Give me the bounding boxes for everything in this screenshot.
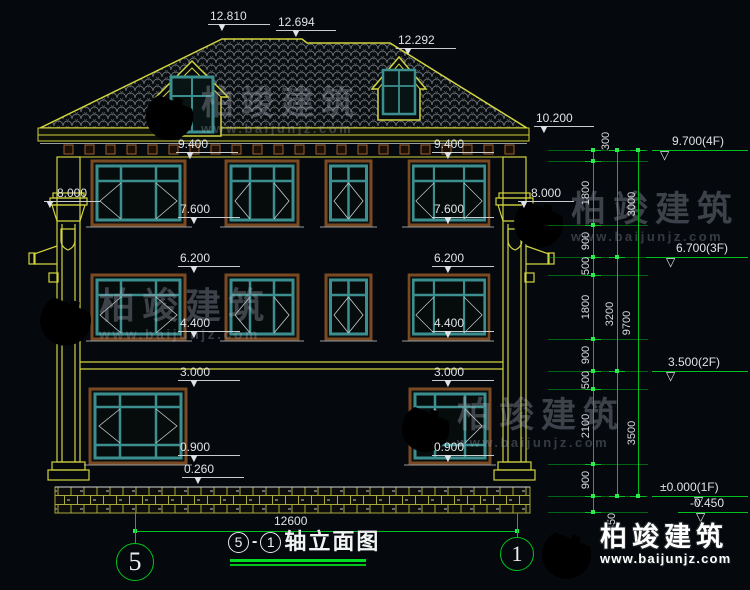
axis-extension-line: [517, 513, 518, 537]
level-label: 3.500(2F): [668, 355, 720, 369]
axis-bubble-1: 1: [500, 537, 534, 571]
title-axis-ref-from: 5: [228, 532, 249, 553]
chain-dot: [591, 159, 595, 163]
down-triangle-icon: ▼: [442, 215, 454, 226]
chain-dim-label: 1800: [580, 181, 592, 205]
chain-dot: [591, 337, 595, 341]
baijun-logo-icon: [536, 523, 596, 587]
elevation-label: 0.900▼: [178, 440, 240, 456]
elevation-label: 0.900▼: [432, 440, 494, 456]
elevation-label: 8.000▼: [44, 186, 100, 202]
down-triangle-icon: ▼: [290, 28, 302, 39]
level-label: 9.700(4F): [672, 134, 724, 148]
down-triangle-icon: ▼: [538, 124, 550, 135]
chain-dot: [636, 148, 640, 152]
elevation-label: 12.292▼: [396, 33, 456, 49]
dimension-layer: 12.810▼12.694▼12.292▼10.200▼9.400▼9.400▼…: [0, 0, 750, 590]
elevation-label: 3.000▼: [178, 365, 240, 381]
down-triangle-icon: ▼: [44, 199, 56, 210]
down-triangle-icon: ▼: [188, 378, 200, 389]
title-dash: -: [252, 533, 257, 551]
chain-dim-label: 3200: [604, 302, 616, 326]
elevation-label: 7.600▼: [178, 202, 240, 218]
chain-line: [593, 150, 594, 512]
title-axis-ref-to: 1: [260, 532, 281, 553]
level-triangle-icon: ▽: [660, 149, 669, 161]
down-triangle-icon: ▼: [188, 264, 200, 275]
drawing-title: 5 - 1 轴立面图: [228, 531, 380, 553]
title-underline: [230, 559, 366, 562]
chain-line: [638, 150, 639, 496]
elevation-label: 3.000▼: [432, 365, 494, 381]
elevation-label: 10.200▼: [534, 111, 594, 127]
elevation-label: 8.000▼: [518, 186, 574, 202]
elevation-label: 6.200▼: [432, 251, 494, 267]
chain-dim-label: 900: [580, 232, 592, 250]
axis-bubble-5: 5: [116, 543, 154, 581]
chain-dot: [591, 148, 595, 152]
down-triangle-icon: ▼: [442, 453, 454, 464]
elevation-label: 12600: [272, 514, 309, 529]
chain-dim-label: 500: [580, 371, 592, 389]
chain-dot: [591, 494, 595, 498]
down-triangle-icon: ▼: [518, 199, 530, 210]
brand-url: www.baijunjz.com: [600, 551, 731, 566]
elevation-label: 9.400▼: [432, 137, 494, 153]
elevation-label: 9.400▼: [176, 137, 238, 153]
elevation-value: 12.694: [278, 15, 334, 29]
elevation-label: 4.400▼: [432, 316, 494, 332]
chain-dim-label: 3000: [626, 192, 638, 216]
chain-dot: [591, 223, 595, 227]
brand-logo: 柏竣建筑 www.baijunjz.com: [536, 523, 731, 587]
down-triangle-icon: ▼: [402, 46, 414, 57]
chain-dim-label: 500: [580, 257, 592, 275]
chain-dim-label: 900: [580, 471, 592, 489]
cad-canvas[interactable]: 柏竣建筑 www.baijunjz.com 柏竣建筑 www.baijunjz.…: [0, 0, 750, 590]
chain-dim-label: 1800: [580, 295, 592, 319]
down-triangle-icon: ▼: [442, 150, 454, 161]
elevation-label: 0.260▼: [182, 462, 244, 478]
down-triangle-icon: ▼: [442, 264, 454, 275]
chain-dot: [615, 255, 619, 259]
level-triangle-icon: ▽: [666, 370, 675, 382]
down-triangle-icon: ▼: [188, 329, 200, 340]
axis-extension-line: [135, 513, 136, 543]
down-triangle-icon: ▼: [184, 150, 196, 161]
down-triangle-icon: ▼: [188, 215, 200, 226]
elevation-label: 4.400▼: [178, 316, 240, 332]
chain-dot: [615, 369, 619, 373]
level-label: 6.700(3F): [676, 241, 728, 255]
chain-dim-label: 2100: [580, 414, 592, 438]
chain-dot: [591, 510, 595, 514]
chain-dot: [636, 494, 640, 498]
elevation-label: 6.200▼: [178, 251, 240, 267]
down-triangle-icon: ▼: [442, 329, 454, 340]
brand-name: 柏竣建筑: [600, 523, 731, 551]
title-underline-thin: [230, 564, 366, 566]
elevation-label: 12.694▼: [276, 15, 336, 31]
chain-dim-label: 300: [600, 132, 612, 150]
down-triangle-icon: ▼: [442, 378, 454, 389]
level-triangle-icon: ▽: [666, 256, 675, 268]
chain-dot: [591, 462, 595, 466]
title-text: 轴立面图: [284, 531, 380, 553]
chain-dot: [615, 148, 619, 152]
level-line: [678, 512, 748, 513]
elevation-label: 12.810▼: [208, 9, 270, 25]
level-line: [646, 257, 748, 258]
chain-dim-label: 3500: [626, 421, 638, 445]
level-label: ±0.000(1F): [660, 480, 719, 494]
elevation-label: 7.600▼: [432, 202, 494, 218]
down-triangle-icon: ▼: [192, 475, 204, 486]
down-triangle-icon: ▼: [216, 22, 228, 33]
chain-dim-label: 9700: [621, 311, 633, 335]
chain-line: [617, 150, 618, 496]
elevation-value: 12600: [274, 514, 307, 528]
level-label: -0.450: [690, 496, 724, 510]
chain-dim-label: 900: [580, 346, 592, 364]
chain-dot: [615, 494, 619, 498]
